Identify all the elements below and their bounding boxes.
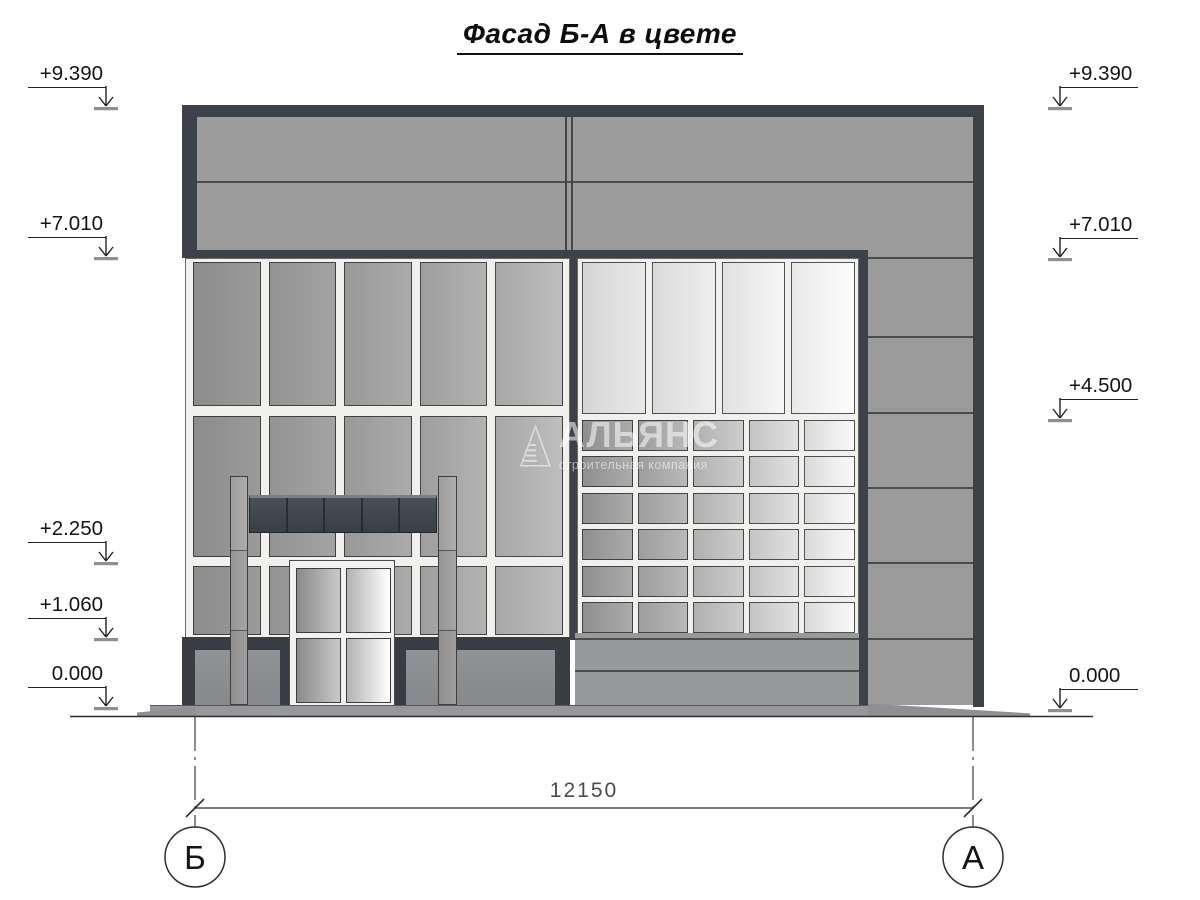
panel-row xyxy=(582,529,855,560)
plinth-end xyxy=(182,637,195,707)
elevation-arrow-icon xyxy=(91,617,121,643)
section-divider xyxy=(570,252,577,640)
plinth-end xyxy=(395,637,406,707)
glass-panel xyxy=(791,262,855,414)
parapet-bottom-edge xyxy=(182,250,868,258)
elevation-value: +4.500 xyxy=(1060,375,1138,400)
glass-panel xyxy=(804,456,855,487)
glass-panel xyxy=(269,262,337,406)
elevation-arrow-icon xyxy=(91,686,121,712)
column-segment xyxy=(231,630,247,704)
glass-panel xyxy=(749,493,800,524)
glass-panel xyxy=(398,498,436,532)
elevation-mark-right-1: +9.390 xyxy=(1060,63,1138,88)
glass-panel xyxy=(420,262,488,406)
pilaster-left-edge xyxy=(859,250,868,707)
pilaster-joint xyxy=(868,638,973,640)
glass-panel xyxy=(323,498,361,532)
glass-panel xyxy=(804,602,855,633)
glass-panel xyxy=(495,262,563,406)
elevation-arrow-icon xyxy=(1045,86,1075,112)
elevation-value: 0.000 xyxy=(1060,665,1138,690)
elevation-value: +1.060 xyxy=(28,594,106,619)
parapet-divider xyxy=(571,117,573,250)
plinth-end xyxy=(280,637,289,707)
elevation-value: +2.250 xyxy=(28,518,106,543)
glass-panel xyxy=(638,602,689,633)
column-segment xyxy=(439,477,456,550)
door-glass-pane xyxy=(296,568,341,633)
panel-row xyxy=(582,602,855,633)
entrance-column-right xyxy=(438,476,457,705)
elevation-mark-right-3: +4.500 xyxy=(1060,375,1138,400)
panel-row xyxy=(582,493,855,524)
plinth-end xyxy=(555,637,570,707)
pilaster-joint xyxy=(868,487,973,489)
drawing-title: Фасад Б-А в цвете xyxy=(457,18,743,55)
elevation-arrow-icon xyxy=(91,236,121,262)
glass-panel xyxy=(344,416,412,557)
glass-panel xyxy=(638,493,689,524)
column-segment xyxy=(439,550,456,630)
glass-panel xyxy=(193,262,261,406)
elevation-value: +7.010 xyxy=(1060,214,1138,239)
panel-row xyxy=(250,498,436,532)
panel-row xyxy=(193,262,563,406)
glass-panel xyxy=(582,262,646,414)
elevation-mark-left-1: +9.390 xyxy=(28,63,106,88)
glass-panel xyxy=(269,416,337,557)
glass-panel xyxy=(495,416,563,557)
glass-panel xyxy=(693,529,744,560)
right-pilaster xyxy=(868,250,973,705)
parapet-joint xyxy=(197,181,973,183)
panel-row xyxy=(582,456,855,487)
glass-panel xyxy=(749,420,800,451)
glass-panel xyxy=(582,456,633,487)
glass-panel xyxy=(582,420,633,451)
elevation-mark-right-2: +7.010 xyxy=(1060,214,1138,239)
column-segment xyxy=(231,550,247,630)
elevation-arrow-icon xyxy=(1045,688,1075,714)
glass-panel xyxy=(361,498,399,532)
column-segment xyxy=(231,477,247,550)
glass-panel xyxy=(722,262,786,414)
elevation-value: 0.000 xyxy=(28,663,106,688)
glass-panel xyxy=(250,498,286,532)
glass-panel xyxy=(638,566,689,597)
glass-panel xyxy=(804,566,855,597)
elevation-arrow-icon xyxy=(1045,398,1075,424)
parapet-top-edge xyxy=(182,105,984,117)
door-glass-pane xyxy=(296,638,341,703)
glass-panel xyxy=(638,529,689,560)
wall-joint xyxy=(575,670,859,672)
axis-label-b: Б xyxy=(165,839,225,877)
panel-row xyxy=(582,566,855,597)
pilaster-joint xyxy=(868,412,973,414)
glass-panel xyxy=(193,416,261,557)
plinth-panel xyxy=(406,650,555,706)
glass-panel xyxy=(193,566,261,635)
elevation-arrow-icon xyxy=(1045,237,1075,263)
axis-label-a: А xyxy=(943,839,1003,877)
elevation-mark-right-4: 0.000 xyxy=(1060,665,1138,690)
glass-panel xyxy=(344,262,412,406)
dimension-value: 12150 xyxy=(195,779,973,803)
glass-panel xyxy=(638,456,689,487)
drawing-sheet: Фасад Б-А в цвете xyxy=(0,0,1200,900)
door-glass-pane xyxy=(346,638,391,703)
elevation-mark-left-3: +2.250 xyxy=(28,518,106,543)
glass-panel xyxy=(749,529,800,560)
glass-panel xyxy=(286,498,324,532)
elevation-arrow-icon xyxy=(91,541,121,567)
glass-panel xyxy=(638,420,689,451)
panel-row xyxy=(582,262,855,414)
elevation-value: +9.390 xyxy=(1060,63,1138,88)
glass-panel xyxy=(749,566,800,597)
panel-row xyxy=(193,416,563,557)
entrance-door xyxy=(289,560,395,706)
parapet-left-edge xyxy=(182,105,197,258)
glass-panel xyxy=(652,262,716,414)
title-row: Фасад Б-А в цвете xyxy=(0,18,1200,55)
elevation-mark-left-4: +1.060 xyxy=(28,594,106,619)
curb-flare-right xyxy=(868,704,1030,717)
elevation-value: +9.390 xyxy=(28,63,106,88)
pilaster-joint xyxy=(868,257,973,259)
stylobate xyxy=(150,705,868,717)
glass-panel xyxy=(804,493,855,524)
parapet-divider xyxy=(565,117,567,250)
column-segment xyxy=(439,630,456,704)
right-small-windows xyxy=(577,420,859,633)
panel-row xyxy=(582,420,855,451)
pilaster-joint xyxy=(868,562,973,564)
glass-panel xyxy=(749,602,800,633)
glass-panel xyxy=(693,420,744,451)
glass-panel xyxy=(804,420,855,451)
right-tall-windows xyxy=(577,262,859,414)
wall-joint xyxy=(575,638,859,640)
door-glass-pane xyxy=(346,568,391,633)
glass-panel xyxy=(582,493,633,524)
glass-panel xyxy=(582,529,633,560)
glass-panel xyxy=(582,566,633,597)
parapet-panels xyxy=(197,117,973,250)
elevation-mark-left-5: 0.000 xyxy=(28,663,106,688)
glass-panel xyxy=(693,602,744,633)
glass-panel xyxy=(693,456,744,487)
pilaster-joint xyxy=(868,336,973,338)
glass-panel xyxy=(693,566,744,597)
building-right-edge xyxy=(973,105,984,707)
glass-panel xyxy=(804,529,855,560)
right-lower-wall xyxy=(575,633,859,705)
glass-panel xyxy=(693,493,744,524)
glass-panel xyxy=(582,602,633,633)
elevation-mark-left-2: +7.010 xyxy=(28,213,106,238)
glass-panel xyxy=(495,566,563,635)
entrance-canopy xyxy=(249,495,437,533)
glass-panel xyxy=(749,456,800,487)
elevation-arrow-icon xyxy=(91,86,121,112)
elevation-value: +7.010 xyxy=(28,213,106,238)
entrance-column-left xyxy=(230,476,248,705)
